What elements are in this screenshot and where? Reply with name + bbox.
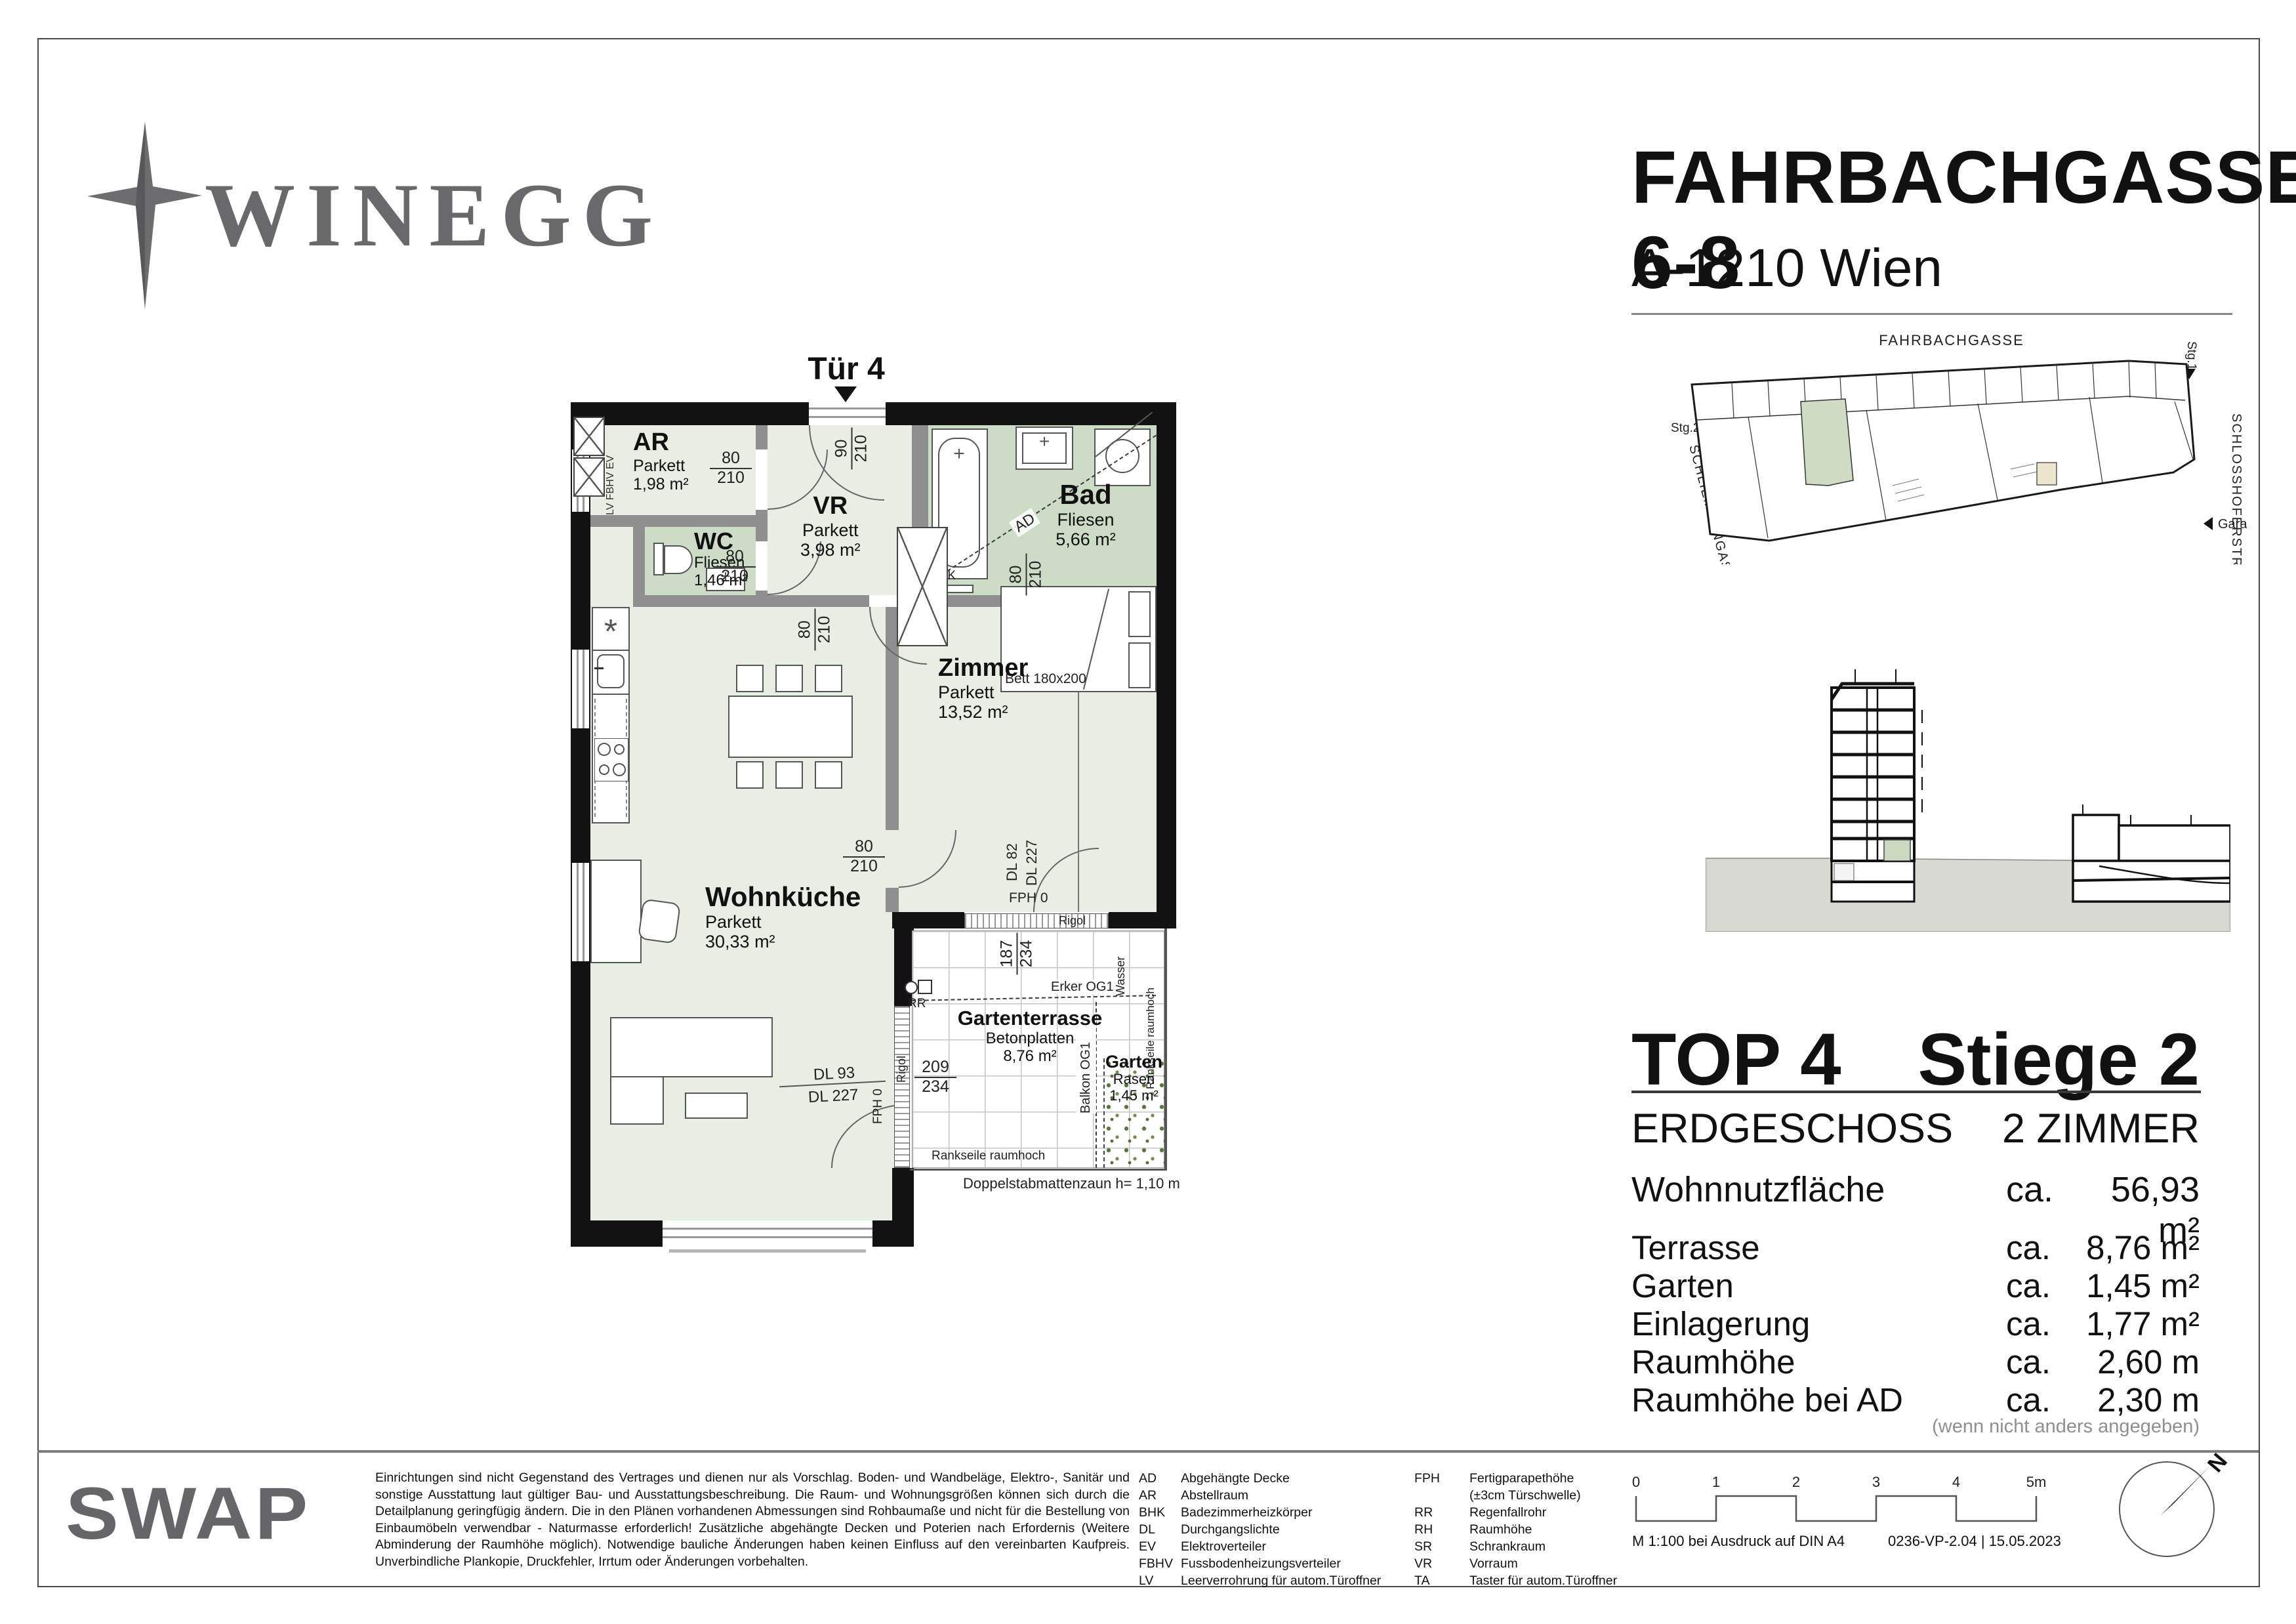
area-main-ca: ca. — [2006, 1169, 2053, 1210]
legend-term: Taster für autom.Türoffner — [1469, 1573, 1617, 1589]
dl227-living-label: DL 227 — [808, 1086, 859, 1107]
door-wc-opening — [756, 541, 768, 591]
winegg-star-icon — [87, 122, 202, 309]
street-right-label: SCHLOSSHOFERSTR. — [2229, 413, 2244, 564]
row-raumhoehe-ad-label: Raumhöhe bei AD — [1631, 1381, 1903, 1419]
unit-floor-label: ERDGESCHOSS — [1631, 1105, 1953, 1152]
rr-pipe-icon — [905, 981, 918, 994]
legend-abbr: AR — [1139, 1488, 1157, 1503]
area-main-label: Wohnnutzfläche — [1631, 1169, 1885, 1210]
wall-terrace-stub — [892, 1168, 914, 1247]
wall-ar-bottom — [590, 515, 768, 527]
ev-cabinet-icon — [573, 417, 605, 456]
swap-logo: SWAP — [66, 1471, 310, 1556]
rigol-top-label: Rigol — [1059, 914, 1086, 928]
site-plan: FAHRBACHGASSE Stg.1 SCHLOSSHOFERSTR. SCH… — [1670, 328, 2247, 564]
row-einlagerung-ca: ca. — [2006, 1304, 2051, 1343]
unit-header-rule — [1631, 1091, 2201, 1093]
unit-top-number: TOP 4 — [1631, 1017, 1841, 1102]
room-label-garten: Garten Rasen 1,45 m² — [1103, 1052, 1164, 1104]
entrance-door-line2 — [809, 416, 886, 418]
legend-abbr: TA — [1414, 1573, 1429, 1589]
door-ar-opening — [756, 449, 768, 510]
fph0-living-label: FPH 0 — [871, 1072, 886, 1124]
kitchen-hood-icon: * — [592, 612, 630, 652]
bath-sink-cross-icon: + — [1022, 431, 1067, 452]
legend-abbr: DL — [1139, 1522, 1155, 1537]
legend-term: Fertigparapethöhe — [1469, 1471, 1574, 1486]
legend-abbr: EV — [1139, 1539, 1156, 1554]
legend-term: Vorraum — [1469, 1556, 1518, 1572]
wall-left — [571, 402, 590, 1247]
legend-term: Regenfallrohr — [1469, 1505, 1546, 1520]
legend-abbr: FPH — [1414, 1471, 1440, 1486]
fence-label: Doppelstabmattenzaun h= 1,10 m — [963, 1175, 1180, 1192]
erker-label: Erker OG1 — [1048, 980, 1117, 995]
terrace-fence-bottom — [910, 1169, 1167, 1171]
room-label-wohnkueche: Wohnküche Parkett 30,33 m² — [705, 881, 861, 952]
dim-entrance: 90 210 — [833, 428, 871, 470]
street-top-label: FAHRBACHGASSE — [1879, 332, 2024, 348]
unit-rooms-label: 2 ZIMMER — [2002, 1105, 2200, 1152]
legend-abbr: AD — [1139, 1471, 1157, 1486]
legend-term: Schrankraum — [1469, 1539, 1546, 1554]
chair-3 — [815, 665, 842, 692]
ev-stack-label: LV FBHV EV — [605, 420, 617, 515]
section-tower — [1832, 669, 1922, 902]
wall-right — [1157, 402, 1176, 928]
garage-label: Garage — [2218, 517, 2247, 531]
legend-abbr: BHK — [1139, 1505, 1165, 1520]
rr-box-icon — [918, 980, 932, 994]
legend-term: Fussbodenheizungsverteiler — [1181, 1556, 1341, 1572]
chair-5 — [775, 761, 803, 789]
scale-tick: 4 — [1952, 1475, 1960, 1490]
info-note: (wenn nicht anders angegeben) — [1806, 1416, 2200, 1438]
legend-term: Raumhöhe — [1469, 1522, 1532, 1537]
row-raumhoehe-ca: ca. — [2006, 1343, 2051, 1381]
kitchen-tap-icon — [594, 667, 604, 669]
dl227-zimmer-label: DL 227 — [1023, 814, 1040, 886]
wall-zimmer-bottom-right — [1109, 912, 1176, 928]
dining-table — [728, 696, 853, 758]
room-label-zimmer: Zimmer Parkett 13,52 m² — [938, 654, 1028, 722]
unit-header: TOP 4 Stiege 2 — [1631, 1017, 2200, 1096]
wall-terrace-divider — [894, 928, 914, 1006]
desk — [590, 860, 642, 963]
entrance-arrow-icon — [834, 386, 857, 402]
title-rule — [1631, 313, 2232, 315]
window-sill — [669, 1249, 866, 1253]
section-neighbour — [2073, 804, 2230, 902]
row-terrasse-value: 8,76 m² — [2062, 1228, 2200, 1267]
window-desk — [572, 863, 589, 961]
dim-line-zimmer-door — [1078, 692, 1079, 912]
entrance-label: Tür 4 — [804, 351, 889, 387]
stg2-label: Stg.2 — [1671, 421, 1700, 435]
row-terrasse-ca: ca. — [2006, 1228, 2051, 1267]
brand-logo: WINEGG — [205, 163, 664, 267]
dim-terrace-a: 187 234 — [998, 933, 1036, 975]
rankseile-bottom-label: Rankseile raumhoch — [932, 1149, 1045, 1163]
legend-abbr: RR — [1414, 1505, 1433, 1520]
room-label-ar: AR Parkett 1,98 m² — [633, 428, 689, 493]
chair-2 — [775, 665, 803, 692]
room-label-bad: Bad Fliesen 5,66 m² — [1030, 479, 1141, 550]
unit-stiege: Stiege 2 — [1917, 1017, 2200, 1102]
dl82-label: DL 82 — [1004, 822, 1021, 881]
dim-terrace-b: 209 234 — [914, 1058, 956, 1096]
wall-zimmer-left-lower — [886, 888, 899, 912]
coffee-table — [685, 1093, 748, 1119]
doc-reference: 0236-VP-2.04 | 15.05.2023 — [1888, 1533, 2061, 1550]
stove-burners-icon — [594, 738, 628, 781]
kitchen-divider-2 — [592, 694, 630, 695]
unit-subheader: ERDGESCHOSS 2 ZIMMER — [1631, 1105, 2200, 1151]
legend-term: Durchgangslichte — [1181, 1522, 1280, 1537]
building-outline — [1692, 361, 2194, 541]
scale-tick: 2 — [1792, 1475, 1800, 1490]
legend-abbr: LV — [1139, 1573, 1153, 1589]
compass-n-label: N — [2203, 1449, 2232, 1477]
window-living — [663, 1220, 872, 1247]
wall-wc-bottom — [633, 595, 768, 607]
window-kitchen — [572, 650, 589, 728]
chair-1 — [736, 665, 764, 692]
row-raumhoehe-ad-ca: ca. — [2006, 1381, 2051, 1419]
garage-arrow-icon — [2204, 517, 2213, 530]
dim-wc-door: 80 210 — [714, 548, 756, 585]
highlighted-unit — [1801, 399, 1853, 486]
sofa-main — [610, 1017, 773, 1077]
legend-term: Elektroverteiler — [1181, 1539, 1266, 1554]
floorplan: Tür 4 — [571, 351, 1194, 1289]
rigol-left-label: Rigol — [895, 1010, 909, 1083]
sofa-chaise — [610, 1076, 664, 1125]
dim-zimmer-door: 80 210 — [843, 838, 885, 875]
wardrobe — [897, 527, 948, 646]
chair-6 — [815, 761, 842, 789]
row-terrasse-label: Terrasse — [1631, 1228, 1760, 1267]
dim-bad-door: 80 210 — [1008, 554, 1045, 596]
rigol-strip-top — [964, 913, 1109, 928]
project-address: A-1210 Wien — [1631, 238, 1942, 299]
row-einlagerung-label: Einlagerung — [1631, 1304, 1810, 1343]
print-scale-note: M 1:100 bei Ausdruck auf DIN A4 — [1632, 1533, 1845, 1550]
entrance-door-line1 — [809, 407, 886, 409]
dim-vr-door: 80 210 — [796, 609, 834, 651]
row-garten-ca: ca. — [2006, 1266, 2051, 1305]
legend-term: Abgehängte Decke — [1181, 1471, 1290, 1486]
scale-tick: 0 — [1632, 1475, 1640, 1490]
scale-tick: 3 — [1872, 1475, 1880, 1490]
row-einlagerung-value: 1,77 m² — [2062, 1304, 2200, 1343]
terrace-fence-right — [1164, 928, 1167, 1170]
room-label-vr: VR Parkett 3,98 m² — [800, 492, 861, 560]
compass-needle-icon — [2160, 1465, 2211, 1516]
north-compass: N — [2095, 1444, 2259, 1575]
toilet-bowl — [664, 545, 693, 574]
scale-bar-steps — [1636, 1496, 2036, 1521]
desk-chair — [638, 898, 681, 944]
rr-label: RR — [908, 997, 926, 1011]
legend-abbr: SR — [1414, 1539, 1432, 1554]
secondary-unit — [2037, 463, 2057, 485]
building-section — [1706, 650, 2230, 932]
legend-term: Abstellraum — [1181, 1488, 1248, 1503]
pillow-2 — [1128, 642, 1151, 688]
legend-term: Badezimmerheizkörper — [1181, 1505, 1313, 1520]
scale-tick: 5m — [2026, 1475, 2047, 1490]
legend-abbr: VR — [1414, 1556, 1432, 1572]
scale-bar: 0 1 2 3 4 5m — [1631, 1475, 2051, 1528]
scale-tick: 1 — [1712, 1475, 1720, 1490]
toilet-tank — [653, 543, 664, 575]
fph0-zimmer-label: FPH 0 — [1009, 890, 1048, 906]
pillow-1 — [1128, 591, 1151, 637]
footer-disclaimer: Einrichtungen sind nicht Gegenstand des … — [375, 1470, 1130, 1570]
legend-abbr: RH — [1414, 1522, 1433, 1537]
footer-rule — [37, 1450, 2259, 1453]
legend-term: Leerverrohrung für autom.Türoffner — [1181, 1573, 1381, 1589]
plan-sheet: WINEGG FAHRBACHGASSE 6-8 A-1210 Wien FAH… — [0, 0, 2296, 1624]
section-highlighted-unit — [1884, 840, 1910, 861]
wasser-label: Wasser — [1114, 934, 1128, 996]
legend-abbr: FBHV — [1139, 1556, 1173, 1572]
row-garten-value: 1,45 m² — [2062, 1266, 2200, 1305]
room-label-terrasse: Gartenterrasse Betonplatten 8,76 m² — [948, 1007, 1112, 1065]
bathtub-tap-icon: + — [938, 443, 980, 465]
fbhv-cabinet-icon — [573, 457, 605, 497]
wall-wc-left — [633, 527, 645, 595]
legend-term: (±3cm Türschwelle) — [1469, 1488, 1581, 1503]
row-raumhoehe-label: Raumhöhe — [1631, 1343, 1795, 1381]
dl93-label: DL 93 — [813, 1064, 855, 1084]
row-raumhoehe-value: 2,60 m — [2062, 1343, 2200, 1381]
chair-4 — [736, 761, 764, 789]
entrance-opening — [809, 402, 886, 425]
row-garten-label: Garten — [1631, 1266, 1734, 1305]
dim-ar-door: 80 210 — [710, 449, 752, 487]
row-raumhoehe-ad-value: 2,30 m — [2062, 1381, 2200, 1419]
wall-zimmer-bottom-left — [892, 912, 964, 928]
kitchen-sink — [597, 654, 625, 688]
